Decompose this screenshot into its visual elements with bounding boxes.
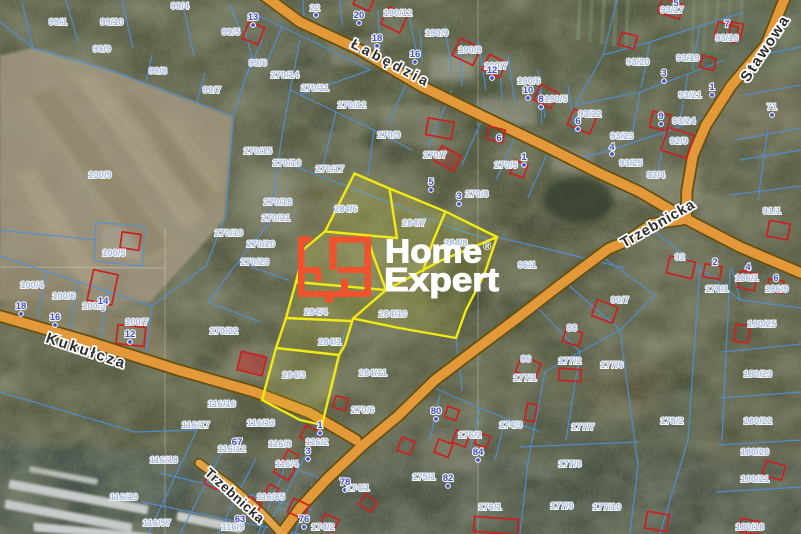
svg-text:270/19: 270/19 bbox=[215, 228, 244, 238]
svg-text:270/12: 270/12 bbox=[338, 100, 367, 110]
svg-text:284/1: 284/1 bbox=[318, 337, 342, 347]
svg-text:71: 71 bbox=[767, 102, 777, 112]
svg-text:1: 1 bbox=[709, 82, 715, 93]
svg-text:270/21: 270/21 bbox=[262, 213, 291, 223]
svg-text:190/8: 190/8 bbox=[458, 45, 482, 55]
svg-text:6: 6 bbox=[575, 116, 580, 127]
svg-text:®: ® bbox=[483, 241, 492, 253]
svg-text:99/6: 99/6 bbox=[249, 58, 267, 68]
svg-text:91/1: 91/1 bbox=[763, 206, 781, 216]
svg-text:177/9: 177/9 bbox=[550, 501, 574, 511]
svg-text:14: 14 bbox=[98, 296, 109, 307]
svg-text:190/5: 190/5 bbox=[544, 94, 568, 104]
svg-text:284/3: 284/3 bbox=[282, 370, 306, 380]
svg-text:180/23: 180/23 bbox=[744, 369, 773, 379]
svg-text:270/20: 270/20 bbox=[247, 239, 276, 249]
svg-text:6: 6 bbox=[496, 133, 501, 144]
svg-text:116/13: 116/13 bbox=[247, 418, 275, 428]
svg-text:88: 88 bbox=[567, 323, 577, 333]
svg-text:177/8: 177/8 bbox=[558, 459, 582, 469]
svg-text:180/26: 180/26 bbox=[741, 447, 770, 457]
svg-text:270/11: 270/11 bbox=[301, 83, 329, 93]
svg-text:270/14: 270/14 bbox=[271, 70, 300, 80]
svg-text:190/9: 190/9 bbox=[425, 28, 449, 38]
svg-text:180/21: 180/21 bbox=[741, 474, 770, 484]
svg-text:3: 3 bbox=[456, 191, 461, 202]
svg-text:180/18: 180/18 bbox=[736, 522, 765, 532]
svg-text:6: 6 bbox=[773, 273, 778, 284]
svg-text:92: 92 bbox=[675, 252, 685, 262]
svg-text:22: 22 bbox=[310, 3, 320, 13]
svg-text:116/65: 116/65 bbox=[257, 492, 285, 502]
svg-text:93/23: 93/23 bbox=[610, 131, 634, 141]
svg-text:284/10: 284/10 bbox=[379, 309, 408, 319]
svg-text:176/2: 176/2 bbox=[458, 430, 482, 440]
svg-text:93/19: 93/19 bbox=[676, 53, 700, 63]
svg-text:177/6: 177/6 bbox=[600, 360, 624, 370]
svg-text:1: 1 bbox=[521, 152, 527, 163]
svg-text:270/16: 270/16 bbox=[273, 158, 302, 168]
svg-text:90/7: 90/7 bbox=[611, 295, 629, 305]
svg-text:116/18: 116/18 bbox=[150, 455, 178, 465]
svg-text:20: 20 bbox=[354, 10, 365, 21]
svg-text:67: 67 bbox=[232, 437, 243, 448]
svg-text:270/23: 270/23 bbox=[241, 257, 270, 267]
svg-text:78: 78 bbox=[340, 477, 351, 488]
svg-text:18: 18 bbox=[16, 301, 27, 312]
svg-text:116/4: 116/4 bbox=[275, 459, 298, 469]
svg-text:99/8: 99/8 bbox=[149, 66, 167, 76]
svg-text:116/57: 116/57 bbox=[143, 518, 171, 528]
svg-text:180/22: 180/22 bbox=[744, 416, 773, 426]
svg-text:63: 63 bbox=[235, 514, 246, 525]
svg-text:76: 76 bbox=[299, 514, 310, 525]
svg-text:93/20: 93/20 bbox=[626, 57, 650, 67]
svg-text:92/4: 92/4 bbox=[647, 170, 665, 180]
svg-text:99/10: 99/10 bbox=[100, 17, 124, 27]
svg-text:174/2: 174/2 bbox=[311, 522, 335, 532]
svg-text:93/22: 93/22 bbox=[578, 109, 602, 119]
svg-text:175/1: 175/1 bbox=[412, 472, 436, 482]
svg-text:99/7: 99/7 bbox=[203, 85, 221, 95]
svg-text:4: 4 bbox=[609, 142, 615, 153]
svg-text:284/11: 284/11 bbox=[359, 368, 387, 378]
svg-text:96/1: 96/1 bbox=[518, 260, 536, 270]
svg-text:93/21: 93/21 bbox=[678, 90, 702, 100]
svg-text:100/6: 100/6 bbox=[52, 291, 76, 301]
svg-text:178/1: 178/1 bbox=[705, 284, 729, 294]
svg-text:270/22: 270/22 bbox=[210, 326, 239, 336]
svg-text:270/15: 270/15 bbox=[244, 146, 273, 156]
svg-text:177/10: 177/10 bbox=[593, 502, 622, 512]
svg-text:93/25: 93/25 bbox=[619, 158, 643, 168]
svg-text:270/7: 270/7 bbox=[423, 150, 447, 160]
svg-text:116/16: 116/16 bbox=[208, 399, 236, 409]
svg-text:1: 1 bbox=[317, 420, 323, 431]
svg-text:174/3: 174/3 bbox=[499, 420, 523, 430]
svg-text:4: 4 bbox=[745, 262, 751, 273]
svg-text:186/9: 186/9 bbox=[765, 284, 789, 294]
svg-text:284/4: 284/4 bbox=[304, 307, 328, 317]
svg-text:178/2: 178/2 bbox=[660, 416, 684, 426]
svg-text:180/25: 180/25 bbox=[748, 319, 777, 329]
svg-text:Expert: Expert bbox=[384, 261, 499, 298]
svg-text:99/4: 99/4 bbox=[171, 1, 189, 11]
svg-text:13: 13 bbox=[248, 12, 259, 23]
svg-text:176/1: 176/1 bbox=[478, 502, 502, 512]
svg-text:116/8: 116/8 bbox=[268, 439, 291, 449]
svg-text:100/7: 100/7 bbox=[125, 317, 149, 327]
svg-text:12: 12 bbox=[487, 65, 498, 76]
svg-text:99/1: 99/1 bbox=[49, 17, 67, 27]
svg-text:270/17: 270/17 bbox=[316, 164, 345, 174]
svg-text:84: 84 bbox=[473, 447, 484, 458]
svg-text:270/9: 270/9 bbox=[377, 130, 401, 140]
svg-text:5: 5 bbox=[428, 177, 434, 188]
svg-text:93/16: 93/16 bbox=[715, 33, 739, 43]
svg-text:93/24: 93/24 bbox=[672, 116, 696, 126]
svg-text:3: 3 bbox=[305, 446, 310, 457]
svg-text:5: 5 bbox=[673, 0, 679, 9]
svg-text:100/5: 100/5 bbox=[102, 248, 126, 258]
svg-text:9: 9 bbox=[658, 111, 663, 122]
svg-text:116/17: 116/17 bbox=[182, 420, 210, 430]
svg-text:8: 8 bbox=[538, 94, 543, 105]
svg-text:270/8: 270/8 bbox=[465, 189, 489, 199]
svg-text:12: 12 bbox=[125, 329, 136, 340]
svg-text:186/1: 186/1 bbox=[735, 273, 759, 283]
svg-text:18: 18 bbox=[372, 33, 383, 44]
svg-text:93/17: 93/17 bbox=[660, 5, 684, 15]
svg-text:2: 2 bbox=[712, 257, 717, 268]
svg-text:80: 80 bbox=[431, 406, 442, 417]
svg-text:3: 3 bbox=[661, 68, 666, 79]
svg-text:270/5: 270/5 bbox=[494, 160, 518, 170]
svg-text:270/6: 270/6 bbox=[351, 405, 375, 415]
svg-text:270/18: 270/18 bbox=[264, 197, 293, 207]
svg-text:16: 16 bbox=[50, 312, 61, 323]
svg-text:116/19: 116/19 bbox=[110, 492, 138, 502]
svg-text:177/1: 177/1 bbox=[513, 373, 537, 383]
svg-text:99/5: 99/5 bbox=[222, 27, 240, 37]
svg-text:82: 82 bbox=[443, 473, 454, 484]
svg-text:100/9: 100/9 bbox=[88, 170, 112, 180]
svg-text:284/6: 284/6 bbox=[334, 204, 358, 214]
svg-text:99/9: 99/9 bbox=[93, 44, 111, 54]
svg-text:100/4: 100/4 bbox=[20, 280, 44, 290]
svg-text:86: 86 bbox=[521, 354, 531, 364]
svg-text:10: 10 bbox=[523, 85, 534, 96]
svg-text:177/2: 177/2 bbox=[558, 356, 582, 366]
svg-text:92/9: 92/9 bbox=[670, 136, 688, 146]
svg-text:7: 7 bbox=[724, 19, 729, 30]
svg-text:284/7: 284/7 bbox=[402, 218, 426, 228]
svg-text:190/12: 190/12 bbox=[384, 8, 413, 18]
svg-text:16: 16 bbox=[410, 49, 421, 60]
svg-text:177/7: 177/7 bbox=[571, 422, 595, 432]
